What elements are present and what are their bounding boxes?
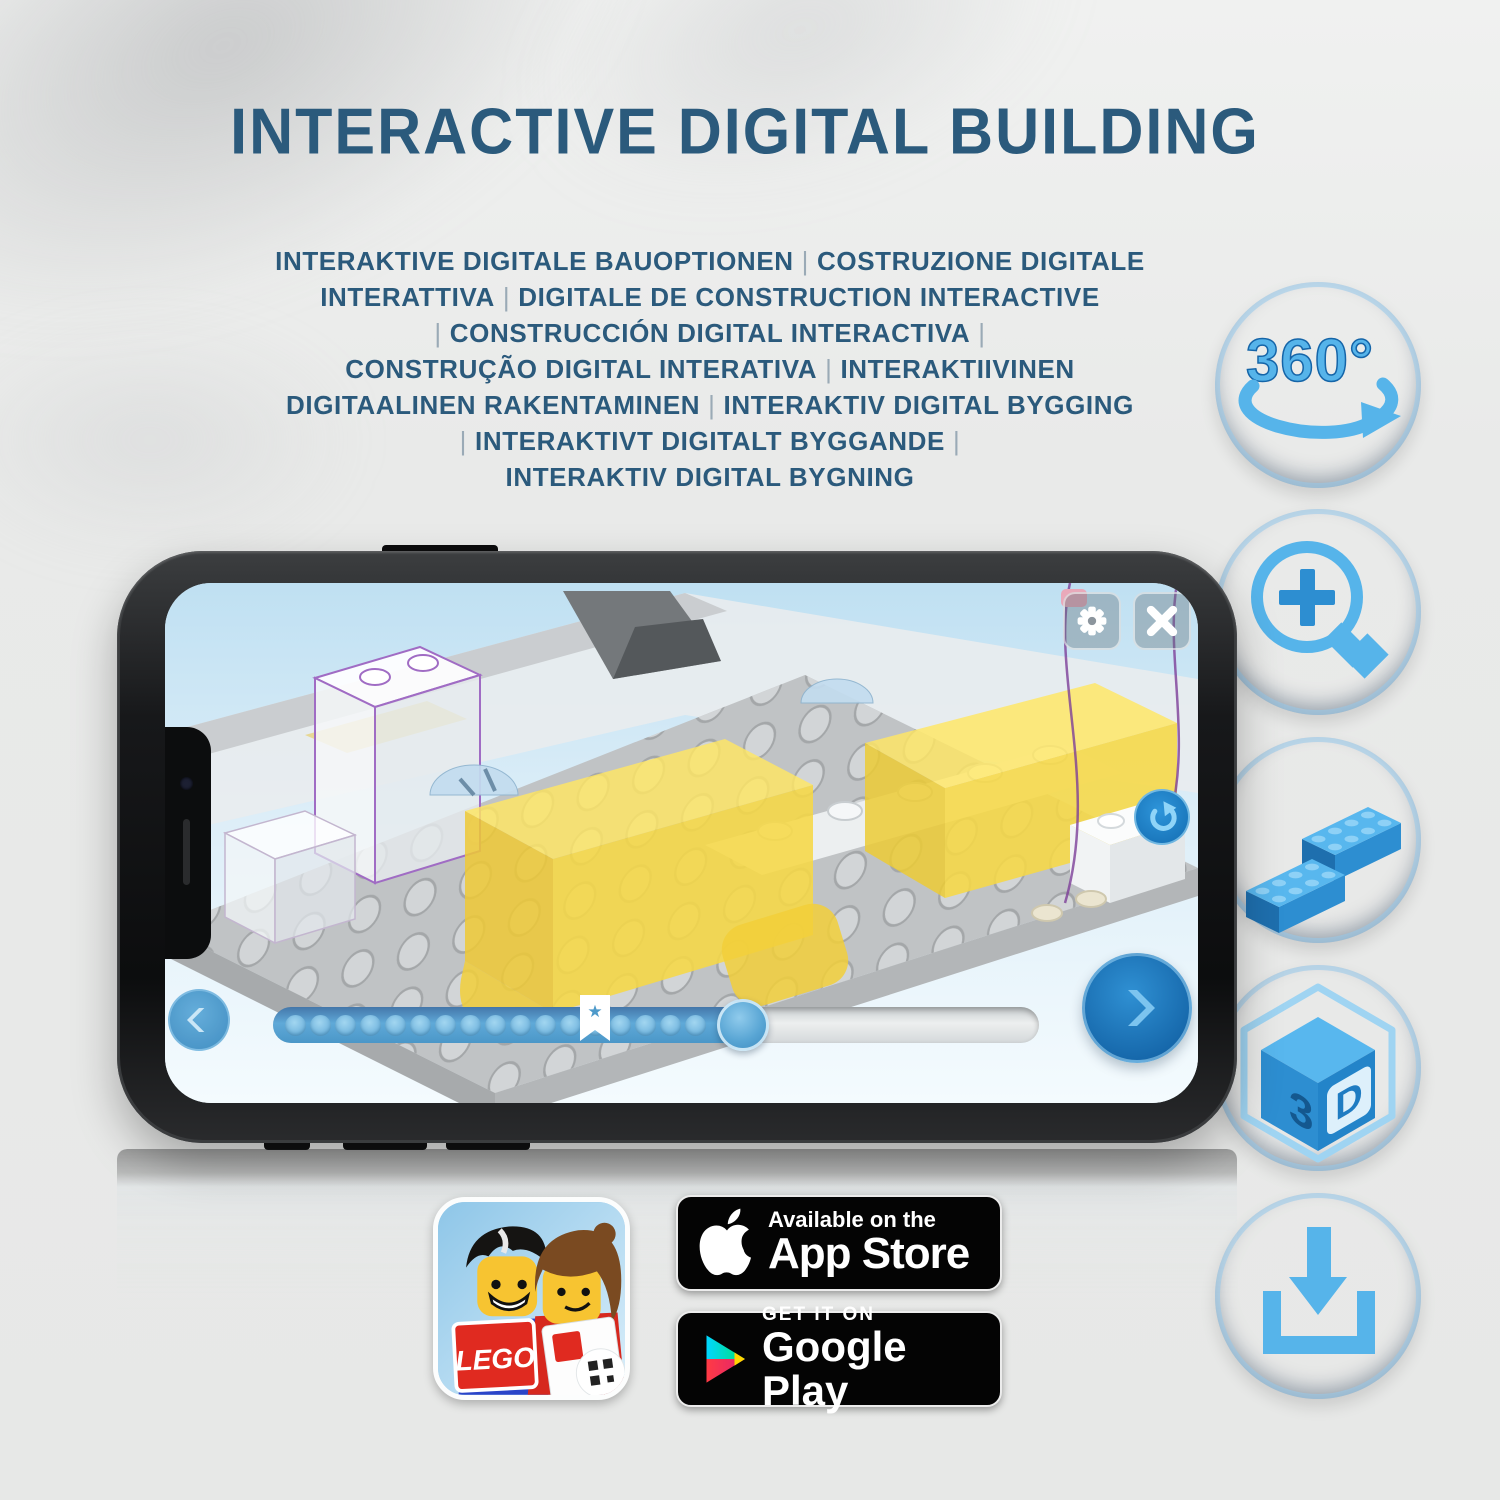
slider-thumb[interactable]	[717, 999, 769, 1051]
close-button[interactable]	[1133, 592, 1191, 650]
apple-icon	[696, 1207, 758, 1279]
subtitle-line: |INTERAKTIVT DIGITALT BYGGANDE|	[0, 423, 1420, 459]
progress-dot	[335, 1015, 356, 1036]
slider-fill	[273, 1007, 742, 1043]
subtitle-line: INTERATTIVA|DIGITALE DE CONSTRUCTION INT…	[0, 279, 1420, 315]
lego-app-icon-art: LEGO	[438, 1202, 625, 1395]
phone-screen: ★	[165, 583, 1198, 1103]
phone-notch	[165, 727, 211, 959]
previous-step-button[interactable]	[168, 989, 230, 1051]
rotate-360-icon: 360°	[1215, 282, 1421, 488]
progress-dot	[310, 1015, 331, 1036]
progress-dot	[560, 1015, 581, 1036]
chevron-right-icon	[1104, 975, 1170, 1041]
subtitle-line: DIGITAALINEN RAKENTAMINEN|INTERAKTIV DIG…	[0, 387, 1420, 423]
subtitle-line: |CONSTRUCCIÓN DIGITAL INTERACTIVA|	[0, 315, 1420, 351]
build-progress-slider[interactable]: ★	[273, 1007, 1039, 1043]
subtitle-line: INTERAKTIV DIGITAL BYGNING	[0, 459, 1420, 495]
feature-download-badge	[1215, 1193, 1421, 1399]
progress-dot	[635, 1015, 656, 1036]
next-step-button[interactable]	[1082, 953, 1192, 1063]
lego-app-icon[interactable]: LEGO	[433, 1197, 630, 1400]
google-play-badge[interactable]: GET IT ON Google Play	[676, 1311, 1002, 1407]
progress-dot	[360, 1015, 381, 1036]
app-store-tagline: Available on the	[768, 1208, 969, 1231]
close-icon	[1142, 601, 1182, 641]
progress-dot	[385, 1015, 406, 1036]
rotate-view-button[interactable]	[1134, 789, 1190, 845]
phone: ★	[117, 551, 1237, 1143]
app-store-name: App Store	[768, 1231, 969, 1277]
progress-dot	[460, 1015, 481, 1036]
google-play-name: Google Play	[762, 1325, 1000, 1413]
settings-button[interactable]	[1063, 592, 1121, 650]
progress-dot	[410, 1015, 431, 1036]
cube-3d-icon: 3 D	[1215, 965, 1421, 1171]
progress-dot	[510, 1015, 531, 1036]
download-icon	[1215, 1193, 1421, 1399]
lego-logo-text: LEGO	[455, 1342, 536, 1377]
feature-360-badge: 360°	[1215, 282, 1421, 488]
progress-dot	[435, 1015, 456, 1036]
progress-dot	[610, 1015, 631, 1036]
brick-icon	[1215, 737, 1421, 943]
page-title: INTERACTIVE DIGITAL BUILDING	[0, 94, 1490, 168]
rotate-icon	[1142, 797, 1182, 837]
progress-dot	[685, 1015, 706, 1036]
progress-dot	[285, 1015, 306, 1036]
feature-brick-badge	[1215, 737, 1421, 943]
feature-360-label: 360°	[1246, 327, 1374, 394]
progress-dot	[535, 1015, 556, 1036]
zoom-in-icon	[1215, 509, 1421, 715]
earpiece-speaker	[183, 819, 190, 885]
google-play-icon	[696, 1328, 752, 1390]
app-store-badge[interactable]: Available on the App Store	[676, 1195, 1002, 1291]
subtitle-line: INTERAKTIVE DIGITALE BAUOPTIONEN|COSTRUZ…	[0, 243, 1420, 279]
progress-dot	[660, 1015, 681, 1036]
page: { "title": { "text": "INTERACTIVE DIGITA…	[0, 0, 1500, 1500]
feature-3d-badge: 3 D	[1215, 965, 1421, 1171]
subtitle: INTERAKTIVE DIGITALE BAUOPTIONEN|COSTRUZ…	[0, 243, 1420, 495]
google-play-tagline: GET IT ON	[762, 1305, 1000, 1325]
front-camera	[180, 777, 193, 790]
chevron-left-icon	[179, 1000, 219, 1040]
progress-dot	[485, 1015, 506, 1036]
feature-zoom-badge	[1215, 509, 1421, 715]
subtitle-line: CONSTRUÇÃO DIGITAL INTERATIVA|INTERAKTII…	[0, 351, 1420, 387]
gear-icon	[1070, 599, 1114, 643]
